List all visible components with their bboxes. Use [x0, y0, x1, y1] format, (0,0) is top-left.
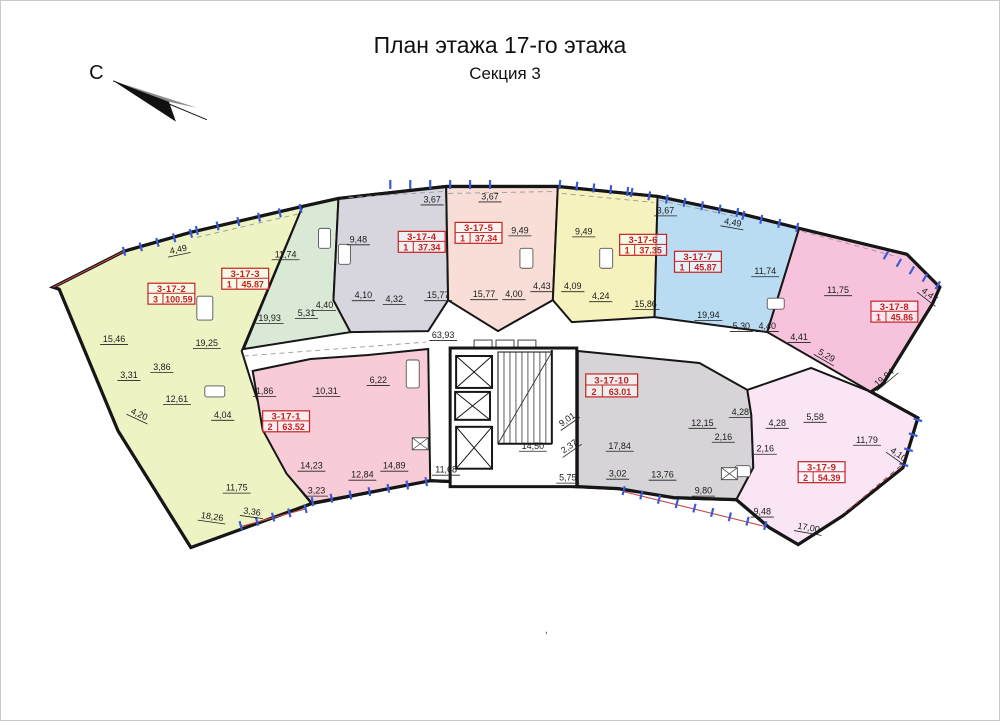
apartment-label-3-17-5: 3-17-5137.34	[455, 222, 502, 243]
stray-mark: ,	[545, 624, 548, 636]
apartment-rooms: 1	[227, 280, 232, 290]
dimension: 5,30	[730, 321, 753, 331]
dimension: 14,23	[298, 461, 326, 471]
fixture	[520, 248, 533, 268]
apartment-area: 54.39	[818, 473, 840, 483]
window-tick	[610, 185, 611, 194]
floor-plan-drawing: 4,4911,749,483,673,679,499,493,674,4911,…	[1, 1, 999, 720]
window-tick	[576, 182, 577, 191]
dimension-text: 3,67	[481, 191, 498, 201]
dimension: 19,93	[256, 313, 284, 323]
fixture	[197, 296, 213, 320]
dimension: 11,74	[751, 266, 779, 276]
dimension-text: 15,46	[103, 334, 125, 344]
dimension-text: 19,93	[258, 313, 280, 323]
fixture	[767, 298, 784, 309]
apartment-id: 3-17-4	[407, 232, 437, 243]
dimension: 15,77	[470, 289, 498, 299]
dimension-text: 9,48	[350, 234, 367, 244]
dimension-text: 9,48	[754, 507, 771, 517]
window-tick	[627, 187, 628, 196]
dimension: 9,80	[692, 486, 715, 496]
dimension-text: 19,25	[196, 338, 218, 348]
dimension: 3,67	[654, 205, 677, 215]
apartment-id: 3-17-5	[464, 223, 493, 234]
dimension: 4,40	[313, 300, 336, 310]
dimension-text: 4,24	[592, 291, 609, 301]
dimension: 4,28	[766, 418, 789, 428]
dimension: 11,68	[432, 465, 460, 475]
window-tick	[693, 504, 695, 513]
dimension-text: 9,49	[511, 225, 528, 235]
dimension: 3,23	[305, 486, 328, 496]
dimension-text: 4,28	[732, 407, 749, 417]
dimension-text: 11,75	[827, 285, 849, 295]
dimension: 3,86	[150, 362, 173, 372]
dimension: 15,77	[424, 290, 452, 300]
dimension-text: 4,40	[316, 300, 333, 310]
apartment-area: 45.87	[694, 263, 716, 273]
dimension-text: 6,22	[370, 375, 387, 385]
apartment-label-3-17-4: 3-17-4137.34	[398, 231, 445, 252]
apartment-rooms: 1	[460, 234, 465, 244]
apartment-id: 3-17-7	[683, 252, 712, 263]
compass: С	[89, 62, 207, 122]
apartment-rooms: 1	[680, 263, 685, 273]
dimension-text: 14,89	[383, 461, 405, 471]
apartment-rooms: 2	[803, 473, 808, 483]
apartment-label-3-17-10: 3-17-10263.01	[586, 374, 638, 397]
apartment-id: 3-17-9	[807, 463, 836, 474]
apartment-label-3-17-3: 3-17-3145.87	[222, 268, 269, 289]
dimension: 5,75	[556, 473, 579, 483]
dimension-text: 4,41	[790, 332, 807, 342]
north-arrow-icon	[113, 81, 176, 122]
dimension-text: 3,67	[423, 194, 440, 204]
dimension-text: 3,86	[153, 362, 170, 372]
dimension-text: 12,84	[351, 470, 373, 480]
fixture	[406, 360, 419, 388]
dimension-text: 11,79	[856, 435, 878, 445]
dimension: 3,31	[117, 370, 140, 380]
apartment-area: 45.87	[241, 280, 263, 290]
apartment-area: 37.34	[475, 234, 497, 244]
fixture	[205, 386, 225, 397]
fixture	[338, 244, 350, 264]
apartment-rooms: 1	[625, 246, 630, 256]
apartment-id: 3-17-8	[880, 302, 909, 313]
apartment-area: 63.01	[609, 387, 631, 397]
compass-north-label: С	[89, 62, 103, 84]
dimension: 11,75	[824, 285, 852, 295]
dimension-text: 9,49	[575, 226, 592, 236]
dimension: 5,58	[804, 412, 827, 422]
apartment-3-17-9	[736, 368, 917, 545]
dimension-text: 2,16	[715, 432, 732, 442]
dimension-text: 4,28	[768, 418, 785, 428]
window-tick	[559, 180, 560, 189]
apartment-label-3-17-8: 3-17-8145.86	[871, 301, 918, 322]
dimension-text: 11,68	[435, 465, 457, 475]
fixture	[600, 248, 613, 268]
dimension: 9,49	[572, 226, 595, 236]
dimension: 3,02	[606, 469, 629, 479]
dimension-text: 3,67	[657, 205, 674, 215]
window-tick	[406, 481, 408, 490]
dimension: 4,41	[788, 332, 811, 342]
dimension: 12,15	[688, 418, 716, 428]
dimension-text: 5,30	[733, 321, 750, 331]
dimension-text: 3,23	[308, 486, 325, 496]
apartment-rooms: 3	[153, 294, 158, 304]
apartment-area: 63.52	[282, 422, 304, 432]
dimension-text: 1,86	[256, 386, 273, 396]
window-tick	[425, 477, 427, 486]
dimension-text: 5,31	[298, 308, 315, 318]
apartment-id: 3-17-3	[231, 269, 260, 280]
dimension-text: 5,58	[806, 412, 823, 422]
dimension: 9,49	[508, 225, 531, 235]
dimension-text: 3,31	[120, 370, 137, 380]
window-tick	[388, 484, 390, 493]
dimension-text: 9,80	[695, 486, 712, 496]
floor-plan-page: 4,4911,749,483,673,679,499,493,674,4911,…	[0, 0, 1000, 721]
window-tick	[711, 508, 713, 517]
dimension-text: 4,43	[533, 281, 550, 291]
dimension-text: 2,16	[757, 444, 774, 454]
window-tick	[729, 512, 731, 521]
fixture	[319, 228, 331, 248]
dimension-text: 4,10	[355, 290, 372, 300]
dimension-text: 14,23	[300, 461, 322, 471]
apartment-label-3-17-7: 3-17-7145.87	[675, 251, 722, 272]
dimension: 15,46	[100, 334, 128, 344]
dimension: 63,93	[429, 330, 457, 340]
dimension-text: 3,02	[609, 469, 626, 479]
dimension-text: 10,31	[315, 386, 337, 396]
dimension: 4,24	[589, 291, 612, 301]
dimension: 4,09	[561, 281, 584, 291]
dimension: 9,48	[751, 507, 774, 517]
dimension-text: 11,74	[754, 266, 776, 276]
dimension-text: 15,77	[427, 290, 449, 300]
window-tick	[312, 497, 314, 506]
apartment-label-3-17-1: 3-17-1263.52	[263, 411, 310, 432]
dimension: 17,84	[606, 441, 634, 451]
north-arrow-needle	[113, 81, 207, 120]
dimension: 4,00	[502, 289, 525, 299]
dimension: 2,16	[712, 432, 735, 442]
dimension: 14,50	[519, 441, 547, 451]
apartment-area: 100.59	[165, 294, 192, 304]
window-tick	[593, 184, 594, 193]
dimension: 4,32	[383, 294, 406, 304]
apartment-label-3-17-6: 3-17-6137.35	[620, 234, 667, 255]
apartment-rooms: 2	[592, 387, 597, 397]
dimension: 9,48	[347, 234, 370, 244]
dimension-text: 14,50	[522, 441, 544, 451]
dimension-text: 11,75	[226, 483, 248, 493]
apartment-rooms: 2	[268, 422, 273, 432]
dimension: 4,40	[756, 321, 779, 331]
dimension-text: 12,15	[691, 418, 713, 428]
dimension: 10,31	[313, 386, 341, 396]
dimension-text: 12,61	[166, 394, 188, 404]
dimension-text: 15,86	[634, 299, 656, 309]
apartment-area: 37.34	[418, 243, 440, 253]
plan-subtitle: Секция 3	[469, 64, 541, 83]
dimension-text: 4,09	[564, 281, 581, 291]
dimension-text: 15,77	[473, 289, 495, 299]
dimension: 3,67	[478, 191, 501, 201]
apartment-area: 37.35	[639, 246, 661, 256]
dimension-text: 4,00	[505, 289, 522, 299]
dimension: 1,86	[253, 386, 276, 396]
dimension: 4,10	[352, 290, 375, 300]
apartment-label-3-17-2: 3-17-23100.59	[148, 283, 195, 304]
dimension: 11,79	[853, 435, 881, 445]
dimension: 3,67	[421, 194, 444, 204]
dimension: 12,84	[348, 470, 376, 480]
dimension-text: 13,76	[651, 470, 673, 480]
apartment-id: 3-17-10	[594, 376, 629, 387]
dimension-text: 63,93	[432, 330, 454, 340]
apartment-area: 45.86	[891, 312, 913, 322]
dimension: 6,22	[367, 375, 390, 385]
plan-title: План этажа 17-го этажа	[374, 32, 627, 58]
dimension: 4,28	[729, 407, 752, 417]
window-tick	[676, 499, 678, 508]
window-tick	[331, 494, 333, 503]
dimension: 11,74	[272, 249, 300, 259]
dimension-text: 5,75	[559, 473, 576, 483]
dimension: 11,75	[223, 483, 251, 493]
apartment-id: 3-17-6	[629, 235, 658, 246]
window-tick	[369, 487, 371, 496]
apartment-id: 3-17-2	[157, 284, 186, 295]
dimension: 2,16	[754, 444, 777, 454]
dimension: 15,86	[632, 299, 660, 309]
window-tick	[350, 491, 352, 500]
dimension-text: 4,40	[759, 321, 776, 331]
dimension: 12,61	[163, 394, 191, 404]
dimension: 4,43	[530, 281, 553, 291]
dimension-text: 4,32	[386, 294, 403, 304]
dimension: 4,04	[211, 410, 234, 420]
apartment-rooms: 1	[403, 243, 408, 253]
dimension-text: 19,94	[697, 310, 719, 320]
dimension: 19,94	[694, 310, 722, 320]
dimension-text: 4,04	[214, 410, 231, 420]
apartment-rooms: 1	[876, 312, 881, 322]
window-tick	[746, 517, 748, 526]
dimension: 13,76	[649, 470, 677, 480]
apartment-label-3-17-9: 3-17-9254.39	[798, 462, 845, 483]
dimension: 14,89	[380, 461, 408, 471]
dimension: 19,25	[193, 338, 221, 348]
dimension: 5,31	[295, 308, 318, 318]
dimension-text: 11,74	[275, 249, 297, 259]
apartment-id: 3-17-1	[272, 412, 301, 423]
dimension-text: 17,84	[608, 441, 630, 451]
